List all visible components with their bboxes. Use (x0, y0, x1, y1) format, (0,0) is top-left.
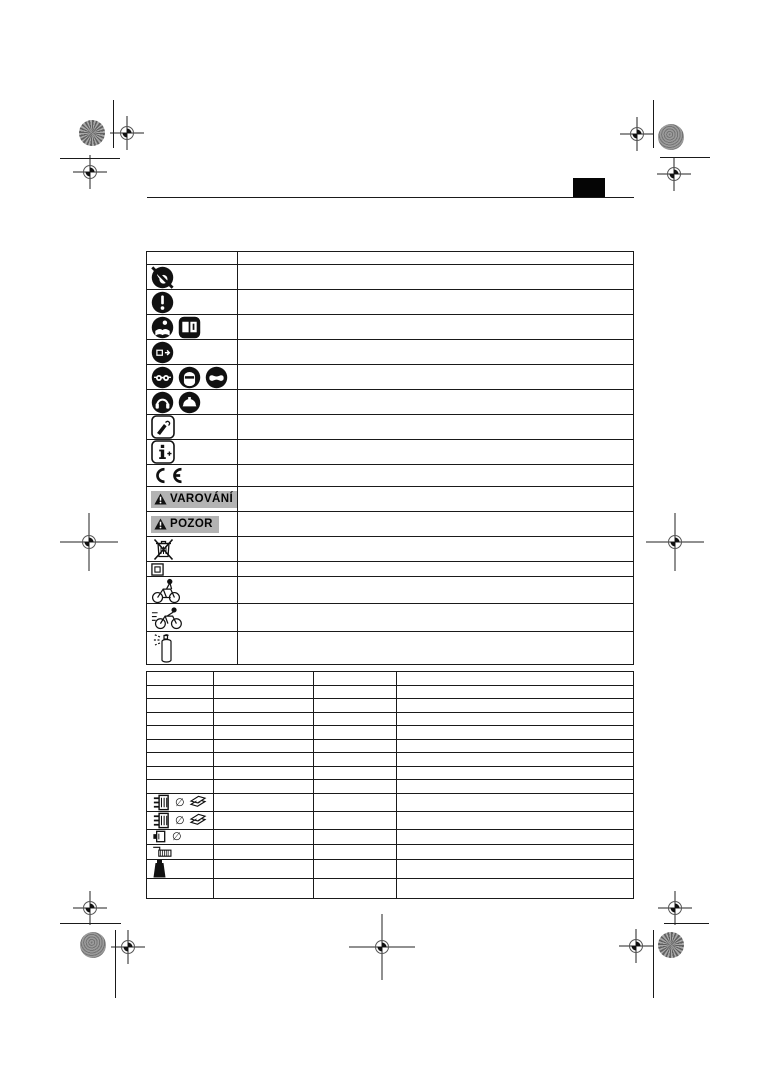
read-instructions-icon (151, 316, 174, 339)
symbols-table-row: POZOR (147, 512, 633, 537)
tech-cell (214, 753, 314, 766)
speed-ebike-icon (151, 605, 183, 630)
tech-cell (214, 672, 314, 685)
remove-battery-icon (151, 341, 174, 364)
tech-table-row (147, 713, 633, 727)
tech-cell (147, 686, 214, 699)
tech-table-row (147, 753, 633, 767)
caution-badge: POZOR (151, 516, 219, 533)
tech-table-row (147, 845, 633, 860)
tech-cell: ∅ (147, 812, 214, 829)
symbols-table-row (147, 315, 633, 340)
weee-bin-icon (151, 537, 176, 561)
tech-cell (314, 830, 397, 844)
tech-cell (397, 879, 633, 898)
symbol-cell (147, 340, 238, 364)
tech-table-row (147, 879, 633, 899)
tech-cell (397, 780, 633, 793)
cassette-icon (151, 812, 171, 829)
tech-cell (314, 879, 397, 898)
symbols-table-row (147, 390, 633, 415)
tech-table-row (147, 686, 633, 700)
tech-cell (397, 830, 633, 844)
tech-cell (214, 860, 314, 879)
tech-cell (397, 713, 633, 726)
tech-cell (214, 879, 314, 898)
symbol-cell: VAROVÁNÍ (147, 487, 238, 511)
symbols-table-row (147, 252, 633, 265)
description-cell (238, 512, 633, 536)
tech-cell (397, 740, 633, 753)
tech-cell (397, 845, 633, 859)
tech-cell: ∅ (147, 830, 214, 844)
symbols-table-row (147, 415, 633, 440)
registration-mark (657, 157, 691, 196)
language-tab (573, 178, 605, 197)
tech-cell (214, 845, 314, 859)
registration-mark (349, 914, 415, 985)
color-control-patch (658, 124, 684, 150)
tech-cell (397, 794, 633, 811)
registration-mark (73, 155, 107, 194)
description-cell (238, 415, 633, 439)
tech-table-row: ∅ (147, 812, 633, 830)
exclamation-icon (151, 291, 174, 314)
tech-cell (147, 879, 214, 898)
tech-table-row (147, 780, 633, 794)
symbols-table: VAROVÁNÍPOZOR (146, 251, 634, 665)
tech-cell (214, 794, 314, 811)
tech-cell (314, 812, 397, 829)
description-cell (238, 632, 633, 664)
ear-protection-icon (151, 391, 174, 414)
protection-class-2-icon (151, 563, 164, 576)
tech-cell (314, 672, 397, 685)
symbol-cell (147, 365, 238, 389)
badge-text: POZOR (170, 518, 213, 530)
eye-protection-icon (151, 366, 174, 389)
tech-table-row (147, 860, 633, 880)
registration-mark (111, 930, 145, 969)
symbols-table-row (147, 365, 633, 390)
chainring-icon (189, 812, 207, 828)
symbols-table-row (147, 632, 633, 665)
diameter-icon: ∅ (172, 831, 182, 842)
tech-table-row (147, 699, 633, 713)
warning-triangle-icon (154, 493, 167, 505)
tech-data-table: ∅∅∅ (146, 671, 634, 899)
description-cell (238, 390, 633, 414)
ce-mark-icon (151, 467, 185, 484)
tech-cell (314, 845, 397, 859)
symbol-cell (147, 562, 238, 576)
tech-cell (147, 780, 214, 793)
tech-cell (147, 740, 214, 753)
description-cell (238, 577, 633, 603)
warning-badge: VAROVÁNÍ (151, 491, 238, 508)
no-touch-icon (151, 266, 174, 289)
tech-cell (147, 699, 214, 712)
tech-cell (314, 794, 397, 811)
tech-cell (147, 672, 214, 685)
tech-table-row: ∅ (147, 830, 633, 845)
symbol-cell (147, 604, 238, 631)
symbols-table-row (147, 577, 633, 604)
color-control-patch (658, 932, 684, 958)
symbol-cell (147, 632, 238, 664)
manual-page: VAROVÁNÍPOZOR ∅∅∅ (0, 0, 765, 1082)
symbol-cell (147, 390, 238, 414)
symbol-cell (147, 252, 238, 264)
tech-cell (214, 713, 314, 726)
info-plus-icon (151, 440, 175, 464)
registration-mark (110, 116, 144, 155)
tech-cell (397, 767, 633, 780)
tech-cell (314, 780, 397, 793)
cassette-icon (151, 794, 171, 811)
symbols-table-row (147, 440, 633, 465)
hand-press-icon (151, 415, 175, 439)
tech-cell (147, 845, 214, 859)
symbol-cell (147, 315, 238, 339)
symbol-cell (147, 465, 238, 486)
description-cell (238, 252, 633, 264)
registration-mark (620, 117, 654, 156)
symbols-table-row (147, 290, 633, 315)
tech-cell (397, 812, 633, 829)
description-cell (238, 440, 633, 464)
registration-mark (73, 891, 107, 930)
tech-table-row (147, 767, 633, 781)
tech-cell (214, 830, 314, 844)
tech-cell (397, 699, 633, 712)
tech-cell (314, 740, 397, 753)
tech-cell (214, 812, 314, 829)
description-cell (238, 315, 633, 339)
symbols-table-row (147, 604, 633, 632)
tech-cell (214, 726, 314, 739)
registration-mark (619, 929, 653, 968)
registration-mark (646, 513, 704, 576)
tech-table-row: ∅ (147, 794, 633, 812)
symbols-table-row: VAROVÁNÍ (147, 487, 633, 512)
symbol-cell (147, 440, 238, 464)
tech-cell (397, 726, 633, 739)
axle-tool-icon (151, 845, 175, 859)
tech-table-row (147, 672, 633, 686)
tech-cell (397, 686, 633, 699)
tech-cell (314, 686, 397, 699)
tech-cell: ∅ (147, 794, 214, 811)
tech-cell (147, 753, 214, 766)
symbols-table-row (147, 265, 633, 290)
description-cell (238, 265, 633, 289)
crop-line (653, 930, 654, 998)
description-cell (238, 340, 633, 364)
symbol-cell (147, 577, 238, 603)
tech-table-row (147, 740, 633, 754)
tech-cell (214, 780, 314, 793)
description-cell (238, 604, 633, 631)
registration-mark (658, 891, 692, 930)
tech-cell (397, 753, 633, 766)
tech-cell (214, 740, 314, 753)
symbol-cell (147, 290, 238, 314)
description-cell (238, 465, 633, 486)
symbols-table-row (147, 537, 633, 562)
tech-cell (314, 860, 397, 879)
ebike-rider-icon (151, 577, 181, 603)
tech-cell (147, 860, 214, 879)
tech-cell (397, 672, 633, 685)
chainring-icon (189, 794, 207, 810)
description-cell (238, 290, 633, 314)
tech-cell (314, 767, 397, 780)
head-protection-icon (178, 391, 201, 414)
diameter-icon: ∅ (175, 797, 185, 808)
tech-cell (214, 699, 314, 712)
diameter-icon: ∅ (175, 815, 185, 826)
face-protection-icon (178, 366, 201, 389)
tech-cell (314, 726, 397, 739)
weight-icon (151, 860, 168, 879)
goggles-icon (205, 366, 228, 389)
tech-table-row (147, 726, 633, 740)
tech-cell (214, 686, 314, 699)
header-rule (147, 197, 634, 198)
symbol-cell (147, 415, 238, 439)
description-cell (238, 487, 633, 511)
hub-icon (151, 830, 168, 844)
tech-cell (147, 713, 214, 726)
tech-cell (214, 767, 314, 780)
tech-cell (314, 699, 397, 712)
color-control-patch (79, 120, 105, 146)
description-cell (238, 537, 633, 561)
tech-cell (147, 767, 214, 780)
registration-mark (60, 513, 118, 576)
description-cell (238, 562, 633, 576)
tech-cell (314, 753, 397, 766)
description-cell (238, 365, 633, 389)
tech-cell (314, 713, 397, 726)
tech-cell (397, 860, 633, 879)
symbols-table-row (147, 465, 633, 487)
symbols-table-row (147, 340, 633, 365)
spray-can-icon (151, 632, 177, 664)
color-control-patch (80, 932, 106, 958)
symbols-table-row (147, 562, 633, 577)
symbol-cell (147, 265, 238, 289)
badge-text: VAROVÁNÍ (170, 493, 233, 505)
symbol-cell: POZOR (147, 512, 238, 536)
manual-book-icon (178, 316, 201, 339)
tech-cell (147, 726, 214, 739)
symbol-cell (147, 537, 238, 561)
warning-triangle-icon (154, 518, 167, 530)
